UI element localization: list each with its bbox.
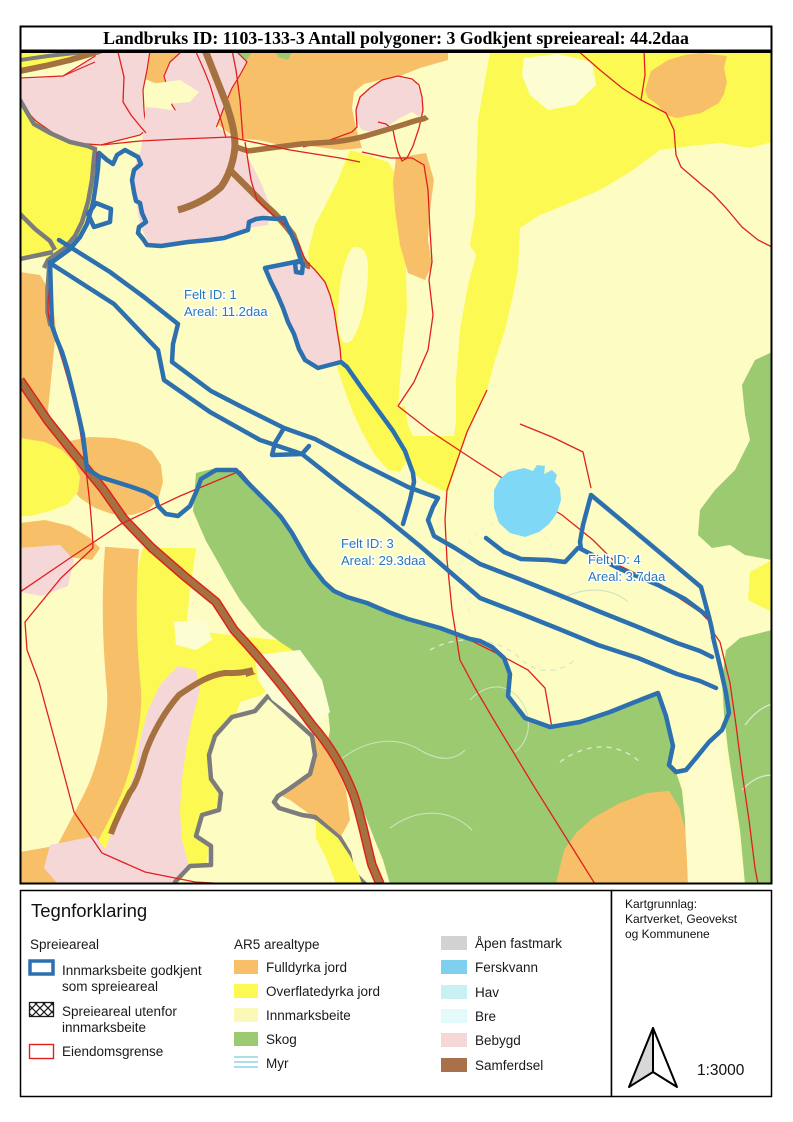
svg-text:Åpen fastmark: Åpen fastmark [475,936,562,951]
svg-text:Felt ID: 3: Felt ID: 3 [341,536,394,551]
svg-text:Fulldyrka jord: Fulldyrka jord [266,960,347,975]
svg-text:Eiendomsgrense: Eiendomsgrense [62,1044,163,1059]
svg-text:Landbruks ID: 1103-133-3 Antal: Landbruks ID: 1103-133-3 Antall polygone… [103,28,689,48]
svg-text:Felt ID: 1: Felt ID: 1 [184,287,237,302]
svg-text:som spreieareal: som spreieareal [62,979,158,994]
svg-text:Ferskvann: Ferskvann [475,960,538,975]
svg-text:Kartgrunnlag:: Kartgrunnlag: [625,897,697,911]
svg-text:Samferdsel: Samferdsel [475,1058,543,1073]
svg-text:Overflatedyrka jord: Overflatedyrka jord [266,984,380,999]
svg-text:Myr: Myr [266,1056,289,1071]
svg-text:1:3000: 1:3000 [697,1062,745,1079]
svg-text:innmarksbeite: innmarksbeite [62,1020,146,1035]
svg-text:Spreieareal: Spreieareal [30,937,99,952]
svg-text:Hav: Hav [475,985,499,1000]
svg-text:Areal: 29.3daa: Areal: 29.3daa [341,553,426,568]
svg-text:Tegnforklaring: Tegnforklaring [31,900,147,921]
svg-text:Innmarksbeite: Innmarksbeite [266,1008,351,1023]
svg-text:Kartverket, Geovekst: Kartverket, Geovekst [625,912,738,926]
svg-text:Bebygd: Bebygd [475,1033,521,1048]
svg-text:Felt ID: 4: Felt ID: 4 [588,552,641,567]
svg-text:og Kommunene: og Kommunene [625,927,710,941]
svg-text:Areal: 11.2daa: Areal: 11.2daa [184,304,268,319]
svg-text:Areal: 3.7daa: Areal: 3.7daa [588,569,666,584]
svg-text:AR5 arealtype: AR5 arealtype [234,937,320,952]
svg-text:Spreieareal utenfor: Spreieareal utenfor [62,1004,177,1019]
svg-text:Skog: Skog [266,1032,297,1047]
svg-text:Innmarksbeite godkjent: Innmarksbeite godkjent [62,963,202,978]
svg-text:Bre: Bre [475,1009,496,1024]
